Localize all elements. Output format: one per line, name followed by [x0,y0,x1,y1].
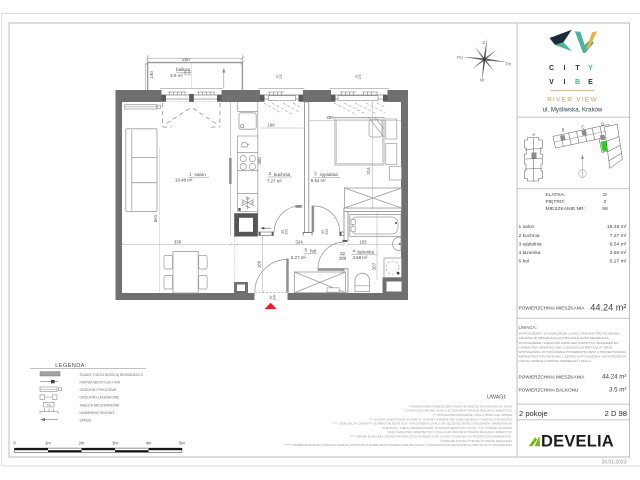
svg-text:ARANŻACJĘ OBRAZUJĄCĄ FUNKCJONA: ARANŻACJĘ OBRAZUJĄCĄ FUNKCJONALNOŚĆ MIES… [519,335,610,340]
svg-text:250: 250 [182,57,190,62]
svg-text:POWIERZCHNIA MIESZKANIA: POWIERZCHNIA MIESZKANIA [519,306,586,311]
svg-text:MAJĄ CHARAKTER ORIENTACYJNY I: MAJĄ CHARAKTER ORIENTACYJNY I MOGĄ ULEC … [388,430,513,434]
svg-text:150: 150 [279,74,283,80]
svg-text:360: 360 [257,157,262,165]
svg-text:MIESZKANIE NR:: MIESZKANIE NR: [546,206,585,212]
svg-text:330: 330 [174,240,182,245]
svg-text:3 sypialnia: 3 sypialnia [519,241,542,247]
svg-text:hol: hol [310,248,316,253]
svg-text:****** ZMIANIE MOŻE ULEC GEOME: ****** ZMIANIE MOŻE ULEC GEOMETRIA OZNAC… [349,434,512,439]
svg-text:ŚCIANY Z MOŻLIWOŚCIĄ REARANŻAC: ŚCIANY Z MOŻLIWOŚCIĄ REARANŻACJI [80,372,143,377]
svg-text:sypialnia: sypialnia [320,172,339,177]
svg-text:18.48 m²: 18.48 m² [607,224,627,230]
svg-text:** ŚCIANKI KOLANKOWE MOGĄ ULEC: ** ŚCIANKI KOLANKOWE MOGĄ ULEC ZMIANIE W… [403,408,512,413]
svg-text:4m: 4m [146,440,152,445]
svg-text:UWAGA:: UWAGA: [519,325,537,330]
svg-text:5.27 m²: 5.27 m² [291,255,306,260]
svg-text:200: 200 [339,256,347,261]
svg-text:WYPOSAŻENIE I WYKOŃCZENIE LOKA: WYPOSAŻENIE I WYKOŃCZENIE LOKALU STANOWI… [519,331,621,336]
svg-text:140: 140 [149,71,154,79]
svg-text:5 hol: 5 hol [519,259,530,265]
svg-text:2 pokoje: 2 pokoje [519,409,548,418]
svg-text:Pd: Pd [457,55,463,60]
svg-text:CHARAKTER ORIENTACYJNY. LOKALI: CHARAKTER ORIENTACYJNY. LOKALIZACJA PRZY… [519,345,613,349]
svg-text:GRZEJNIKI ŁAZIENKOWE: GRZEJNIKI ŁAZIENKOWE [80,396,121,400]
svg-text:3m: 3m [112,440,118,445]
svg-text:E: E [588,79,593,86]
svg-text:INFRASTRUKTURY BUDYNKU. ZAKRES: INFRASTRUKTURY BUDYNKU. ZAKRES WYPOSAŻEN… [519,354,627,359]
svg-text:UWAGI:: UWAGI: [487,395,507,401]
svg-text:WYPOSAŻENIE I WIELKOŚĆ ZAPROJE: WYPOSAŻENIE I WIELKOŚĆ ZAPROJEKTOWANYCH … [519,340,620,345]
svg-text:7.27 m²: 7.27 m² [610,233,627,239]
svg-text:200: 200 [272,295,276,301]
svg-text:3: 3 [314,172,317,177]
svg-text:98: 98 [602,206,608,212]
svg-text:salon: salon [195,172,207,177]
svg-text:44.24 m²: 44.24 m² [602,373,626,380]
svg-text:166: 166 [256,260,261,268]
svg-text:3.5 m²: 3.5 m² [609,386,627,393]
svg-text:9.54 m²: 9.54 m² [311,178,326,183]
svg-text:* POWIERZCHNIA POMIESZCZEŃ POD: * POWIERZCHNIA POMIESZCZEŃ PODANA W ŚWIE… [408,403,512,408]
svg-text:150: 150 [358,74,362,80]
svg-text:3.5 m²: 3.5 m² [170,73,183,78]
svg-text:D: D [603,192,607,198]
svg-text:ul. Myśliwska, Kraków: ul. Myśliwska, Kraków [543,107,603,114]
svg-text:200: 200 [285,229,289,235]
svg-text:SPADKI: SPADKI [80,419,92,423]
svg-text:OKIENNYCH, TABLICY MIESZKANIOW: OKIENNYCH, TABLICY MIESZKANIOWEJ, OTWORÓ… [382,425,512,430]
svg-text:T: T [575,65,580,72]
svg-text:kuchnia: kuchnia [274,172,291,177]
svg-text:3.68 m²: 3.68 m² [353,255,368,260]
svg-text:D: D [601,122,604,127]
svg-text:B: B [562,128,565,133]
svg-text:314: 314 [366,167,371,175]
svg-text:18.48 m²: 18.48 m² [175,177,193,182]
svg-text:***** LOKALIZACJA I GABARYTY E: ***** LOKALIZACJA I GABARYTY ELEMENTÓW I… [332,421,512,426]
svg-text:1 salon: 1 salon [519,224,535,230]
svg-text:324: 324 [295,240,303,245]
svg-text:200: 200 [325,229,329,235]
svg-text:C: C [581,125,584,130]
svg-text:165: 165 [359,240,367,245]
svg-text:240: 240 [187,70,191,76]
svg-text:44.24 m²: 44.24 m² [590,303,626,313]
svg-text:KRATKA WENTYLACYJNA: KRATKA WENTYLACYJNA [80,381,121,385]
svg-text:3.68 m²: 3.68 m² [610,250,627,256]
svg-text:******* NIEZBĘDNE WYMIARY PODA: ******* NIEZBĘDNE WYMIARY PODANE W ŚWIET… [284,442,512,447]
svg-text:2m: 2m [79,440,85,445]
svg-text:TM: TM [47,403,52,407]
svg-text:POWIERZCHNIA MIESZKANIA: POWIERZCHNIA MIESZKANIA [519,374,586,379]
svg-text:5.27 m²: 5.27 m² [610,259,627,265]
svg-text:**** WYMIAR OKIEN PODANY W ŚWI: **** WYMIAR OKIEN PODANY W ŚWIETLE OTWOR… [369,416,512,421]
svg-text:2: 2 [269,171,272,176]
svg-text:B: B [575,79,580,86]
svg-text:A: A [532,132,535,137]
svg-text:I: I [564,65,566,72]
svg-text:9.54 m²: 9.54 m² [610,241,627,247]
svg-text:5: 5 [305,248,308,253]
svg-text:C: C [549,65,554,72]
svg-text:LEGENDA:: LEGENDA: [55,363,87,369]
svg-text:280: 280 [326,115,334,120]
svg-text:Y: Y [588,65,593,72]
svg-text:4 łazienka: 4 łazienka [519,250,541,256]
svg-text:7.27 m²: 7.27 m² [267,179,282,184]
svg-text:2 D 98: 2 D 98 [605,409,627,418]
svg-text:V: V [549,79,554,86]
svg-text:LOKALU OKREŚLA UMOWA SPRZEDAŻY: LOKALU OKREŚLA UMOWA SPRZEDAŻY LOKALU. [519,358,593,363]
svg-text:KTÓRE NIE ZOSTAŁY PODANE NA KA: KTÓRE NIE ZOSTAŁY PODANE NA KARCIE MIESZ… [441,438,513,443]
svg-text:Z: Z [482,40,485,45]
svg-text:1: 1 [189,171,192,176]
svg-text:207: 207 [372,262,377,270]
svg-text:POWIERZCHNIA BALKONU: POWIERZCHNIA BALKONU [519,387,580,392]
svg-text:1m: 1m [45,440,51,445]
svg-text:2: 2 [604,199,607,205]
svg-text:TABLICA MIESZKANIOWA: TABLICA MIESZKANIOWA [80,403,121,407]
svg-text:WYPOSAŻENIA WYKOŃCZENIA POWIER: WYPOSAŻENIA WYKOŃCZENIA POWIERZCHNI JEST… [519,349,628,354]
svg-text:W: W [480,77,485,82]
svg-text:198: 198 [267,123,275,128]
svg-text:PIĘTRO:: PIĘTRO: [546,199,566,205]
svg-text:RIVER VIEW: RIVER VIEW [547,96,598,103]
svg-text:2 kuchnia: 2 kuchnia [519,233,540,239]
svg-text:DEVELIA: DEVELIA [541,433,614,451]
svg-text:4: 4 [353,249,356,254]
svg-text:KLATKA:: KLATKA: [546,192,566,198]
svg-text:NAWIEWNIK OKIENNY: NAWIEWNIK OKIENNY [80,411,116,415]
svg-text:561: 561 [153,214,158,222]
svg-text:I: I [564,79,566,86]
svg-text:łazienka: łazienka [358,249,375,254]
svg-text:*** OSTATECZNE OZNACZENIE LOKA: *** OSTATECZNE OZNACZENIE LOKALU MOŻE UL… [433,412,512,417]
svg-text:16.01.2023: 16.01.2023 [601,459,626,465]
svg-text:0: 0 [13,440,16,445]
svg-text:GRZEJNIKI POKOJOWE: GRZEJNIKI POKOJOWE [80,388,118,392]
svg-text:5m: 5m [179,440,185,445]
svg-text:Pn: Pn [506,61,512,66]
